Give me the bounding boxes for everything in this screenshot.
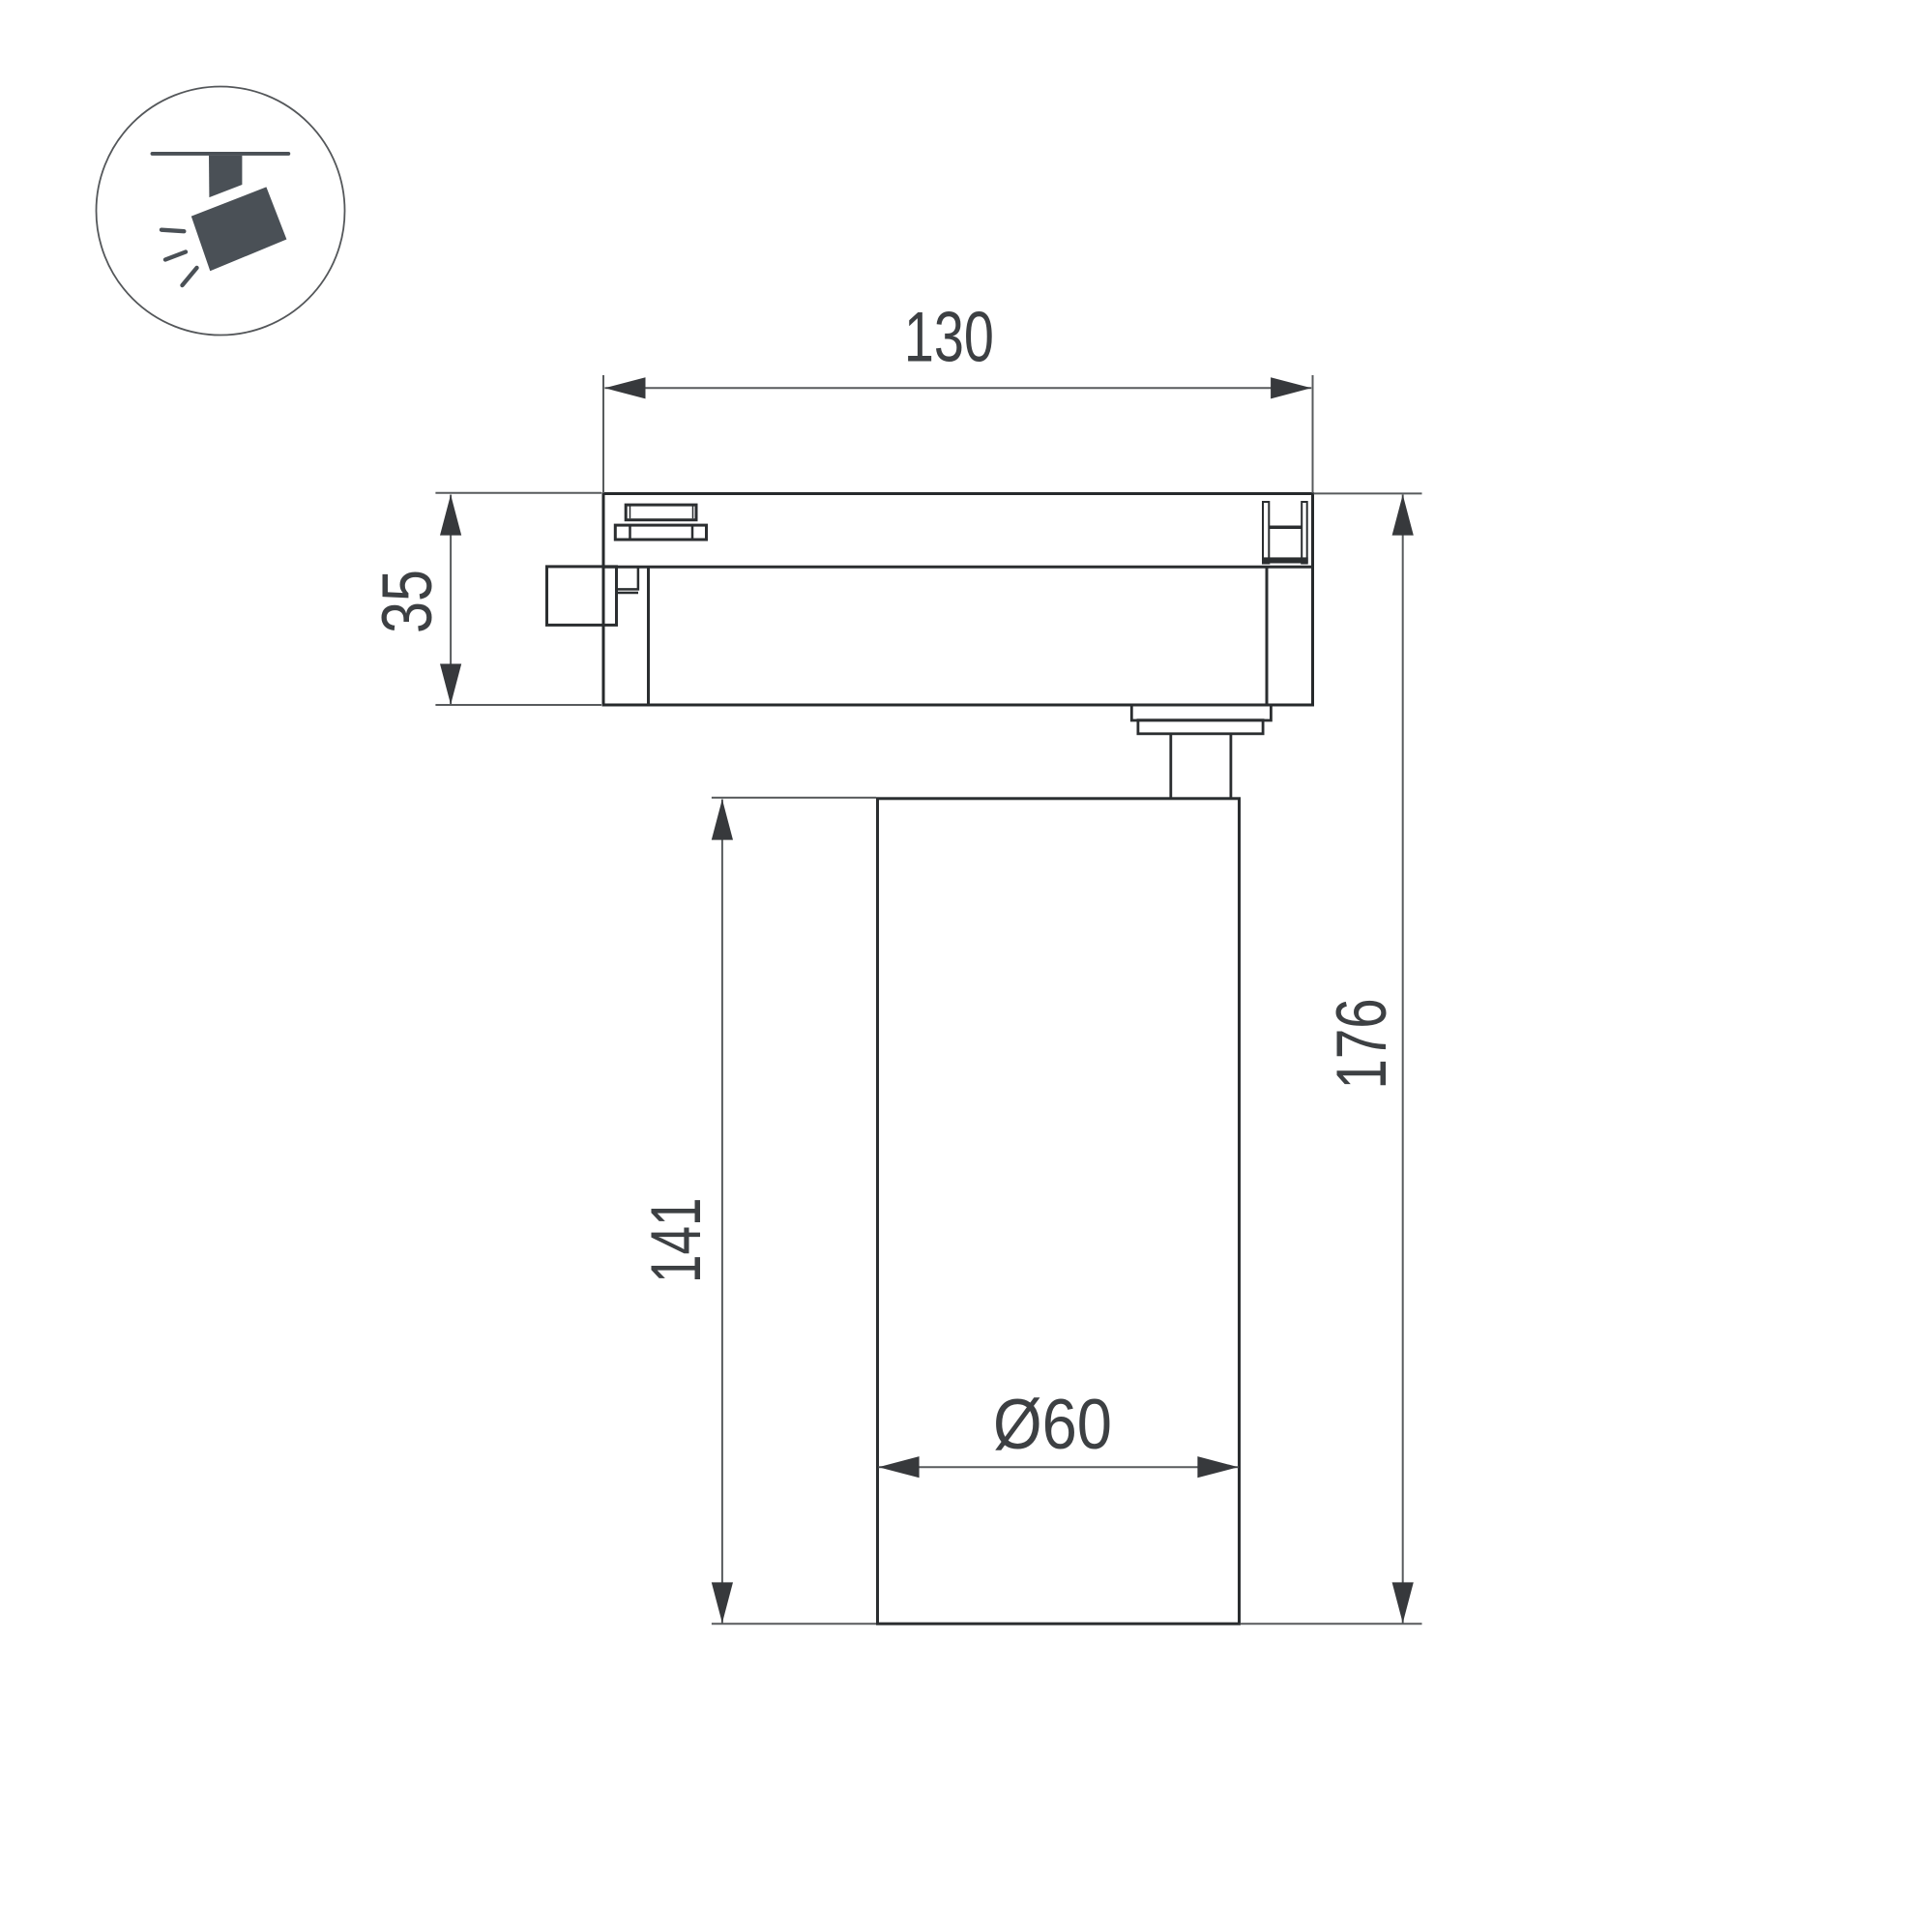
svg-text:130: 130 — [904, 298, 994, 376]
svg-text:35: 35 — [368, 570, 447, 633]
svg-text:Ø60: Ø60 — [993, 1386, 1112, 1464]
svg-text:141: 141 — [637, 1198, 716, 1284]
svg-text:176: 176 — [1323, 998, 1401, 1089]
